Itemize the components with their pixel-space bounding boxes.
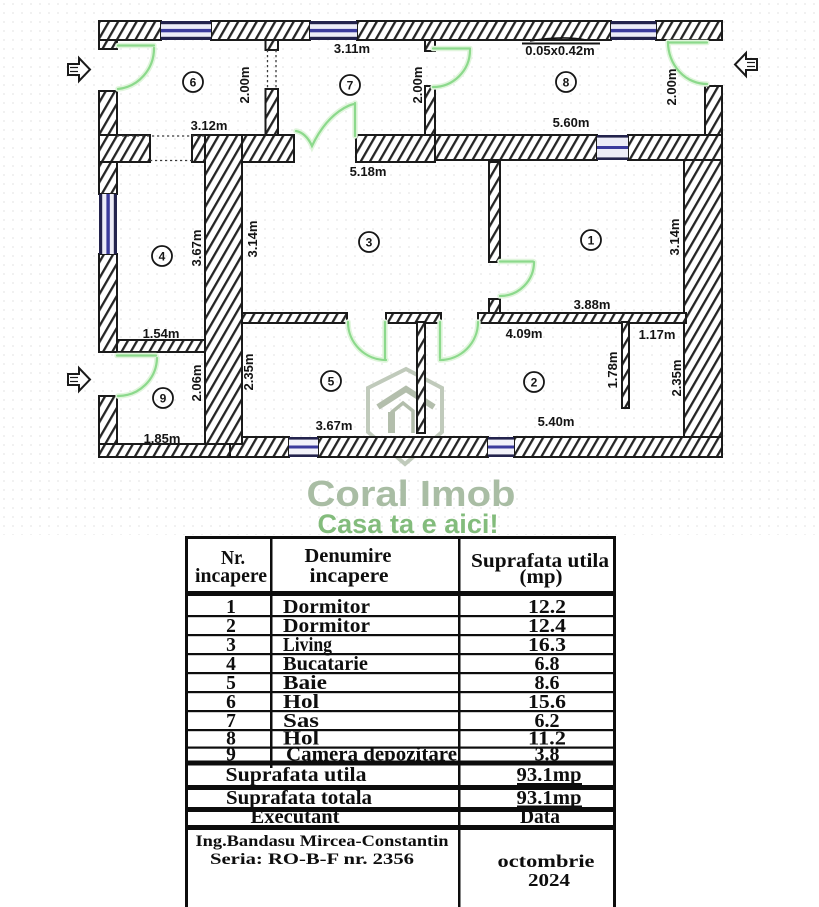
svg-text:2.35m: 2.35m <box>241 354 256 391</box>
svg-text:12.4: 12.4 <box>528 616 566 637</box>
svg-text:3.88m: 3.88m <box>574 297 611 312</box>
svg-text:9: 9 <box>160 392 167 406</box>
svg-text:3: 3 <box>226 635 236 656</box>
svg-text:3.14m: 3.14m <box>245 221 260 258</box>
svg-text:Living: Living <box>283 635 332 656</box>
svg-text:Ing.Bandasu Mircea-Constantin: Ing.Bandasu Mircea-Constantin <box>196 833 449 850</box>
svg-text:1.85m: 1.85m <box>144 431 181 446</box>
svg-text:3.14m: 3.14m <box>667 219 682 256</box>
svg-text:incapere: incapere <box>195 565 267 587</box>
svg-text:93.1mp: 93.1mp <box>517 764 582 786</box>
svg-text:Hol: Hol <box>283 692 320 713</box>
svg-text:Dormitor: Dormitor <box>283 616 370 637</box>
svg-text:Dormitor: Dormitor <box>283 597 370 618</box>
svg-text:4: 4 <box>159 250 166 264</box>
svg-text:incapere: incapere <box>310 565 389 587</box>
svg-text:3.8: 3.8 <box>535 745 560 766</box>
svg-text:3.67m: 3.67m <box>316 418 353 433</box>
svg-text:5: 5 <box>226 673 236 694</box>
svg-text:12.2: 12.2 <box>528 597 566 618</box>
svg-text:6: 6 <box>226 692 236 713</box>
svg-text:1.78m: 1.78m <box>605 352 620 389</box>
svg-text:(mp): (mp) <box>520 566 563 588</box>
svg-text:1: 1 <box>588 234 595 248</box>
svg-text:9: 9 <box>226 745 236 766</box>
svg-text:1.54m: 1.54m <box>143 326 180 341</box>
svg-text:1: 1 <box>226 597 236 618</box>
svg-text:4.09m: 4.09m <box>506 326 543 341</box>
svg-text:Coral Imob: Coral Imob <box>307 473 516 514</box>
svg-text:octombrie: octombrie <box>498 851 595 871</box>
svg-text:2.00m: 2.00m <box>410 67 425 104</box>
svg-text:Denumire: Denumire <box>305 545 392 567</box>
svg-text:5: 5 <box>328 375 335 389</box>
svg-text:4: 4 <box>226 654 236 675</box>
svg-text:3.11m: 3.11m <box>334 41 370 56</box>
svg-text:8: 8 <box>563 76 570 90</box>
svg-text:8.6: 8.6 <box>535 673 560 694</box>
svg-text:3.67m: 3.67m <box>189 230 204 267</box>
svg-text:1.17m: 1.17m <box>639 327 676 342</box>
svg-text:15.6: 15.6 <box>528 692 566 713</box>
svg-text:5.18m: 5.18m <box>350 164 387 179</box>
svg-text:2.35m: 2.35m <box>669 360 684 397</box>
svg-text:Baie: Baie <box>283 673 327 694</box>
svg-text:Bucatarie: Bucatarie <box>283 654 368 675</box>
svg-text:7: 7 <box>347 79 354 93</box>
svg-text:Camera depozitare: Camera depozitare <box>286 745 457 766</box>
svg-text:Seria: RO-B-F nr. 2356: Seria: RO-B-F nr. 2356 <box>210 851 414 868</box>
svg-text:2: 2 <box>226 616 236 637</box>
svg-text:Suprafata utila: Suprafata utila <box>226 764 367 786</box>
svg-text:2.00m: 2.00m <box>237 67 252 104</box>
svg-text:2.00m: 2.00m <box>664 69 679 106</box>
svg-text:2.06m: 2.06m <box>189 365 204 402</box>
svg-text:2: 2 <box>531 376 538 390</box>
svg-text:5.40m: 5.40m <box>538 414 575 429</box>
svg-text:0.05x0.42m: 0.05x0.42m <box>525 43 594 58</box>
svg-text:2024: 2024 <box>528 870 570 890</box>
svg-text:3.12m: 3.12m <box>191 118 228 133</box>
svg-text:6: 6 <box>190 76 197 90</box>
svg-text:6.8: 6.8 <box>535 654 560 675</box>
svg-text:5.60m: 5.60m <box>553 115 590 130</box>
svg-text:16.3: 16.3 <box>528 635 566 656</box>
svg-text:Data: Data <box>520 806 560 828</box>
svg-text:Casa ta e aici!: Casa ta e aici! <box>318 509 499 539</box>
svg-text:Executant: Executant <box>251 806 340 828</box>
svg-text:3: 3 <box>366 236 373 250</box>
